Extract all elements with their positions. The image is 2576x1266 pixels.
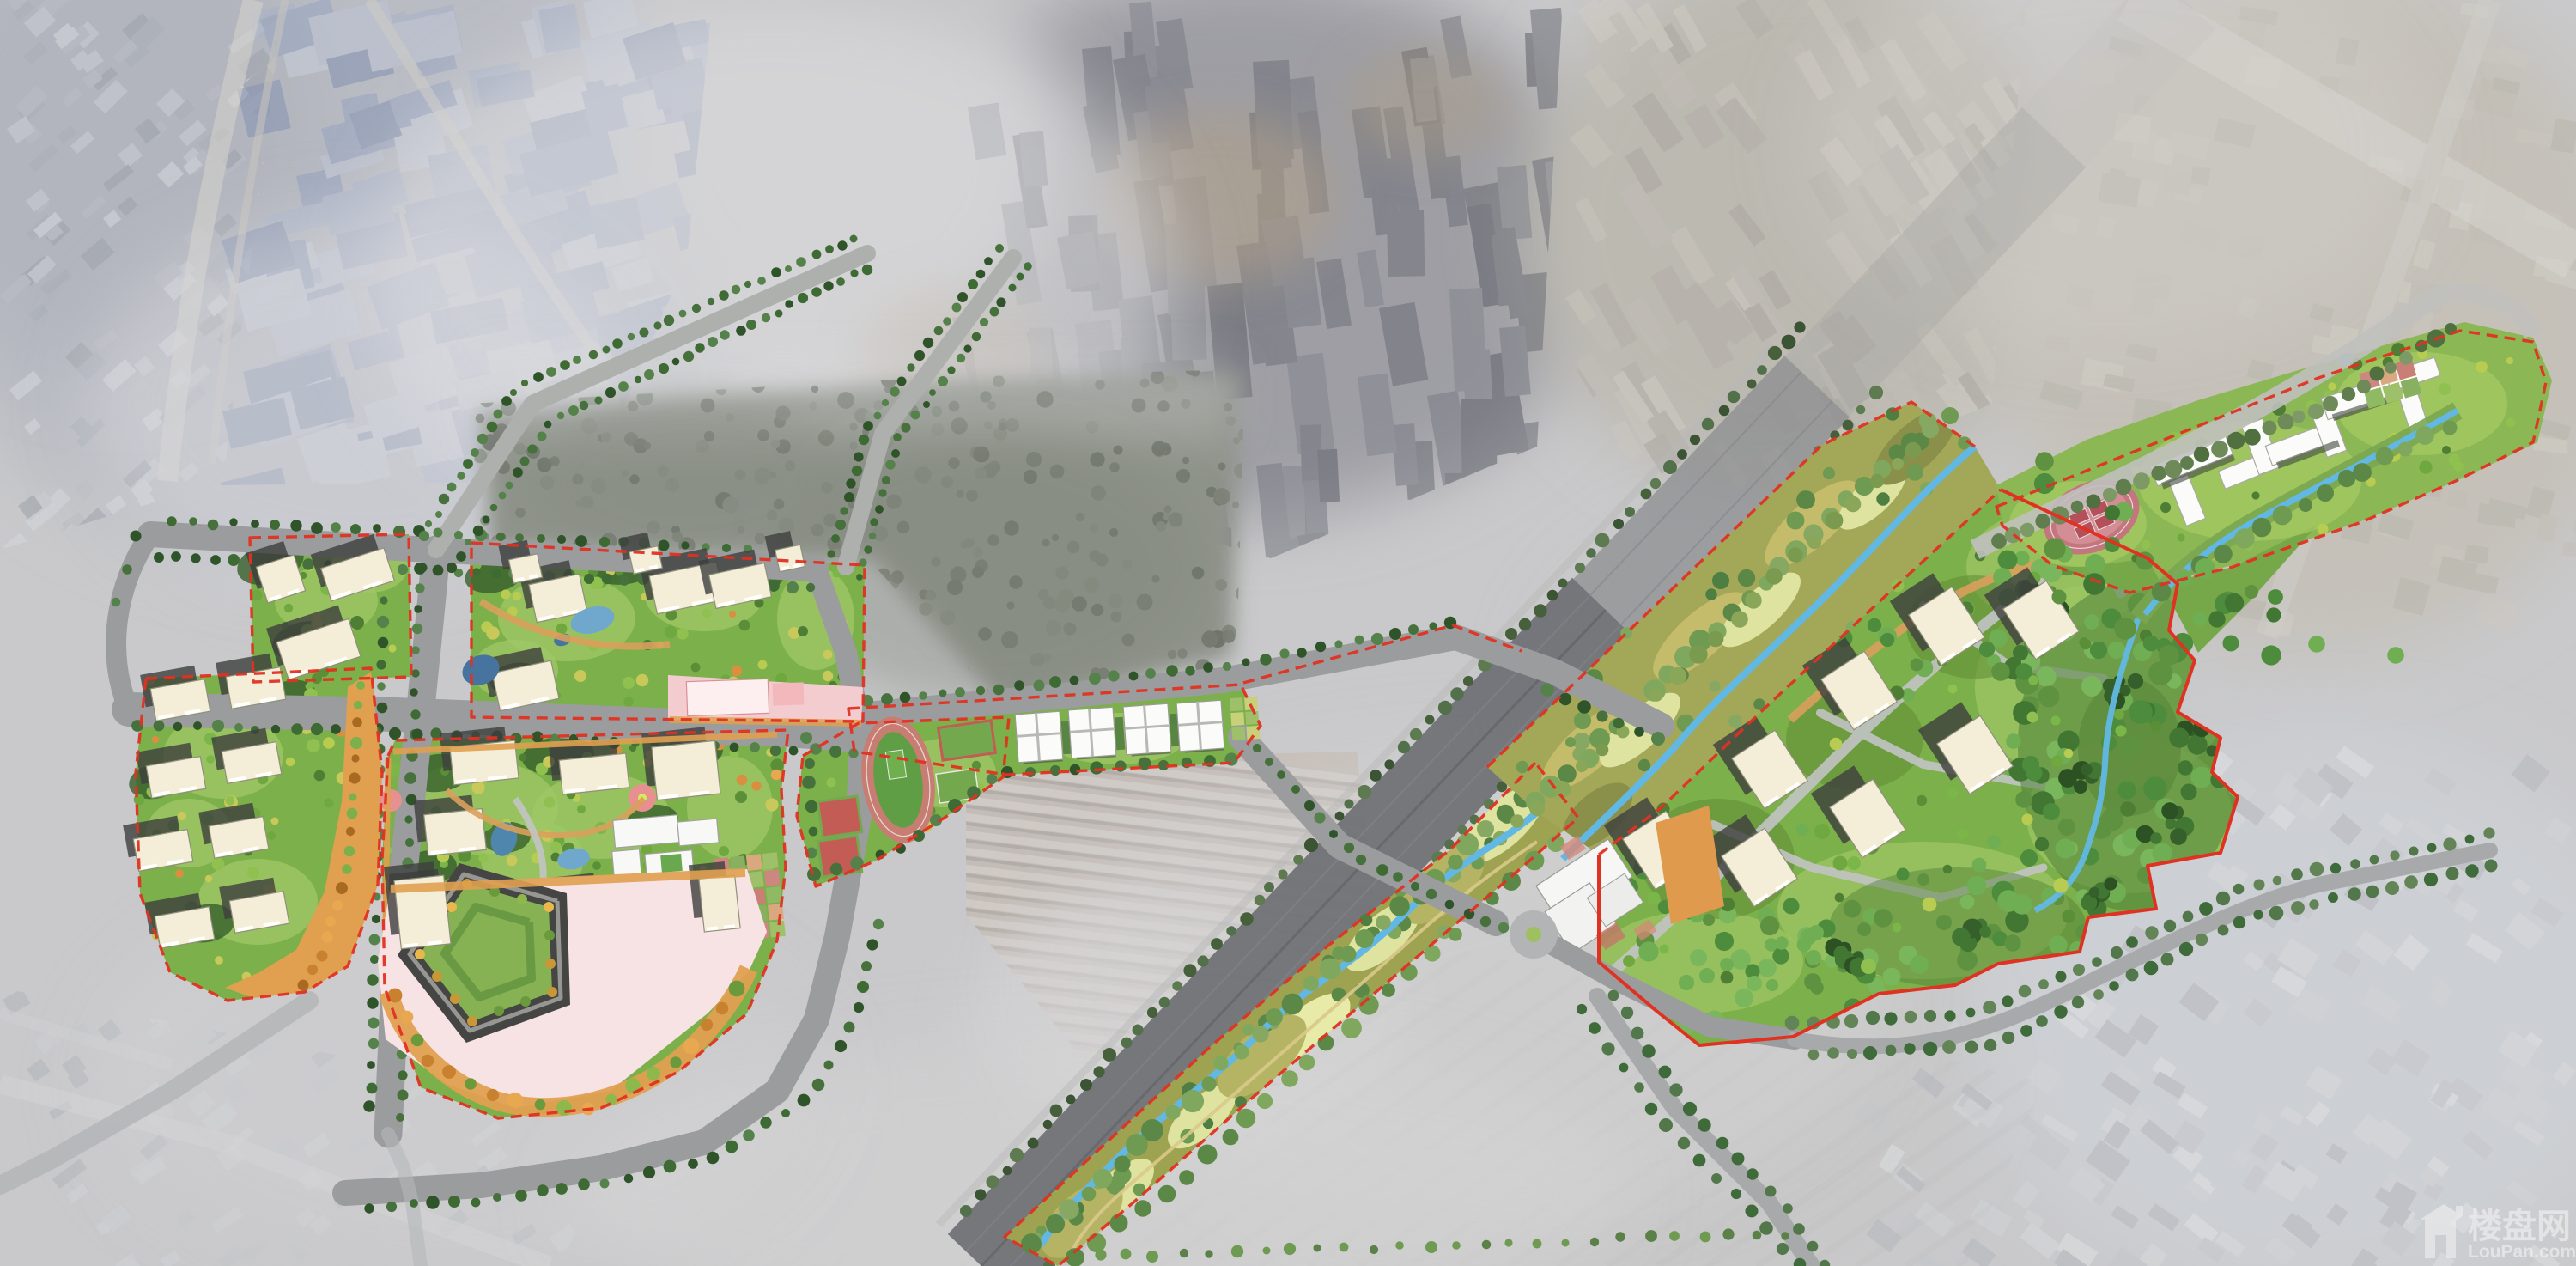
svg-text:LouPan.com: LouPan.com bbox=[2468, 1242, 2576, 1262]
svg-text:楼盘网: 楼盘网 bbox=[2468, 1207, 2571, 1245]
